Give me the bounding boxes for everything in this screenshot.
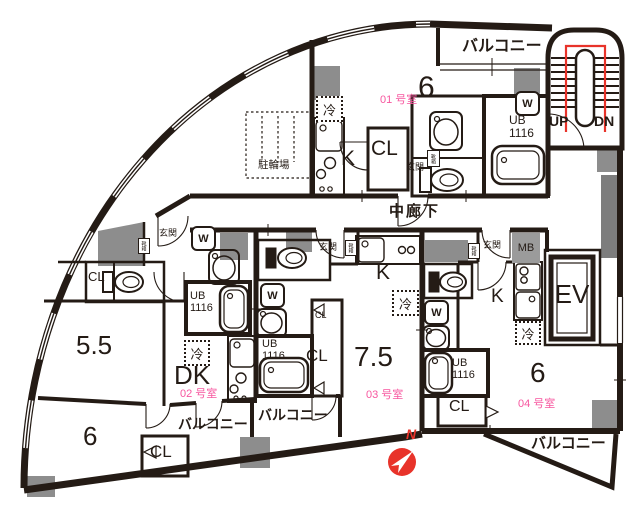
elevator-label: EV <box>552 281 592 308</box>
kitchen-label-04: K <box>491 287 504 307</box>
meter-box: MB <box>512 233 540 263</box>
washer-box-01: W <box>515 91 540 116</box>
entrance-label-01: 玄関 <box>406 163 424 172</box>
balcony-label-02: バルコニー <box>178 417 248 432</box>
unit-number-01: 01 号室 <box>380 95 417 107</box>
stairs-down-label: DN <box>594 114 614 129</box>
room-size-02-main: 5.5 <box>76 332 112 359</box>
unit-number-02: 02 号室 <box>180 389 217 401</box>
closet-label-03-small: CL <box>315 311 327 320</box>
closet-label-02-bottom: CL <box>150 443 172 461</box>
fridge-box-02: 冷 <box>184 340 210 366</box>
closet-label-03: CL <box>306 347 328 365</box>
room-size-03: 7.5 <box>354 342 393 371</box>
room-size-01: 6 <box>418 72 435 104</box>
shoe-box-01: 靴箱 <box>427 150 440 167</box>
bicycle-parking-label: 駐輪場 <box>258 160 290 171</box>
unit-bath-label-02: UB 1116 <box>190 291 213 314</box>
washer-box-02: W <box>191 226 216 251</box>
unit-bath-label-04: UB 1116 <box>452 358 475 381</box>
washer-box-04: W <box>424 300 449 325</box>
entrance-label-03: 玄関 <box>319 243 337 252</box>
closet-label-01: CL <box>371 138 398 160</box>
stairs-up-label: UP <box>549 114 568 129</box>
entrance-label-02: 玄関 <box>159 229 177 238</box>
compass-north-label: N <box>406 427 416 442</box>
balcony-label-04: バルコニー <box>531 436 606 452</box>
dk-label-02: DK <box>174 362 210 389</box>
floor-plan: バルコニー 6 01 号室 K CL 玄関 UB 1116 中廊下 駐輪場 UP… <box>0 0 634 526</box>
balcony-label-01: バルコニー <box>462 39 542 56</box>
shoe-box-04: 靴箱 <box>468 243 480 259</box>
unit-bath-label-01: UB 1116 <box>509 114 534 139</box>
unit-bath-label-03: UB 1116 <box>262 339 285 362</box>
fridge-box-03: 冷 <box>392 290 419 316</box>
fridge-box-04: 冷 <box>515 321 541 345</box>
kitchen-label-03: K <box>376 262 390 284</box>
unit-number-03: 03 号室 <box>366 390 403 402</box>
shoe-box-03: 靴箱 <box>345 240 357 256</box>
fridge-box-01: 冷 <box>316 96 343 122</box>
washer-box-03: W <box>260 283 285 308</box>
room-size-02-lower: 6 <box>83 423 97 450</box>
balcony-label-03: バルコニー <box>258 408 328 423</box>
unit-number-04: 04 号室 <box>518 399 555 411</box>
closet-label-04: CL <box>449 399 469 416</box>
shoe-box-02: 靴箱 <box>138 238 150 254</box>
compass <box>388 448 416 476</box>
corridor-label: 中廊下 <box>389 204 440 220</box>
entrance-label-04: 玄関 <box>483 241 501 250</box>
room-size-04: 6 <box>530 358 546 387</box>
staircase <box>548 30 622 150</box>
closet-label-02-left: CL <box>88 270 105 284</box>
kitchen-label-01: K <box>341 148 355 170</box>
